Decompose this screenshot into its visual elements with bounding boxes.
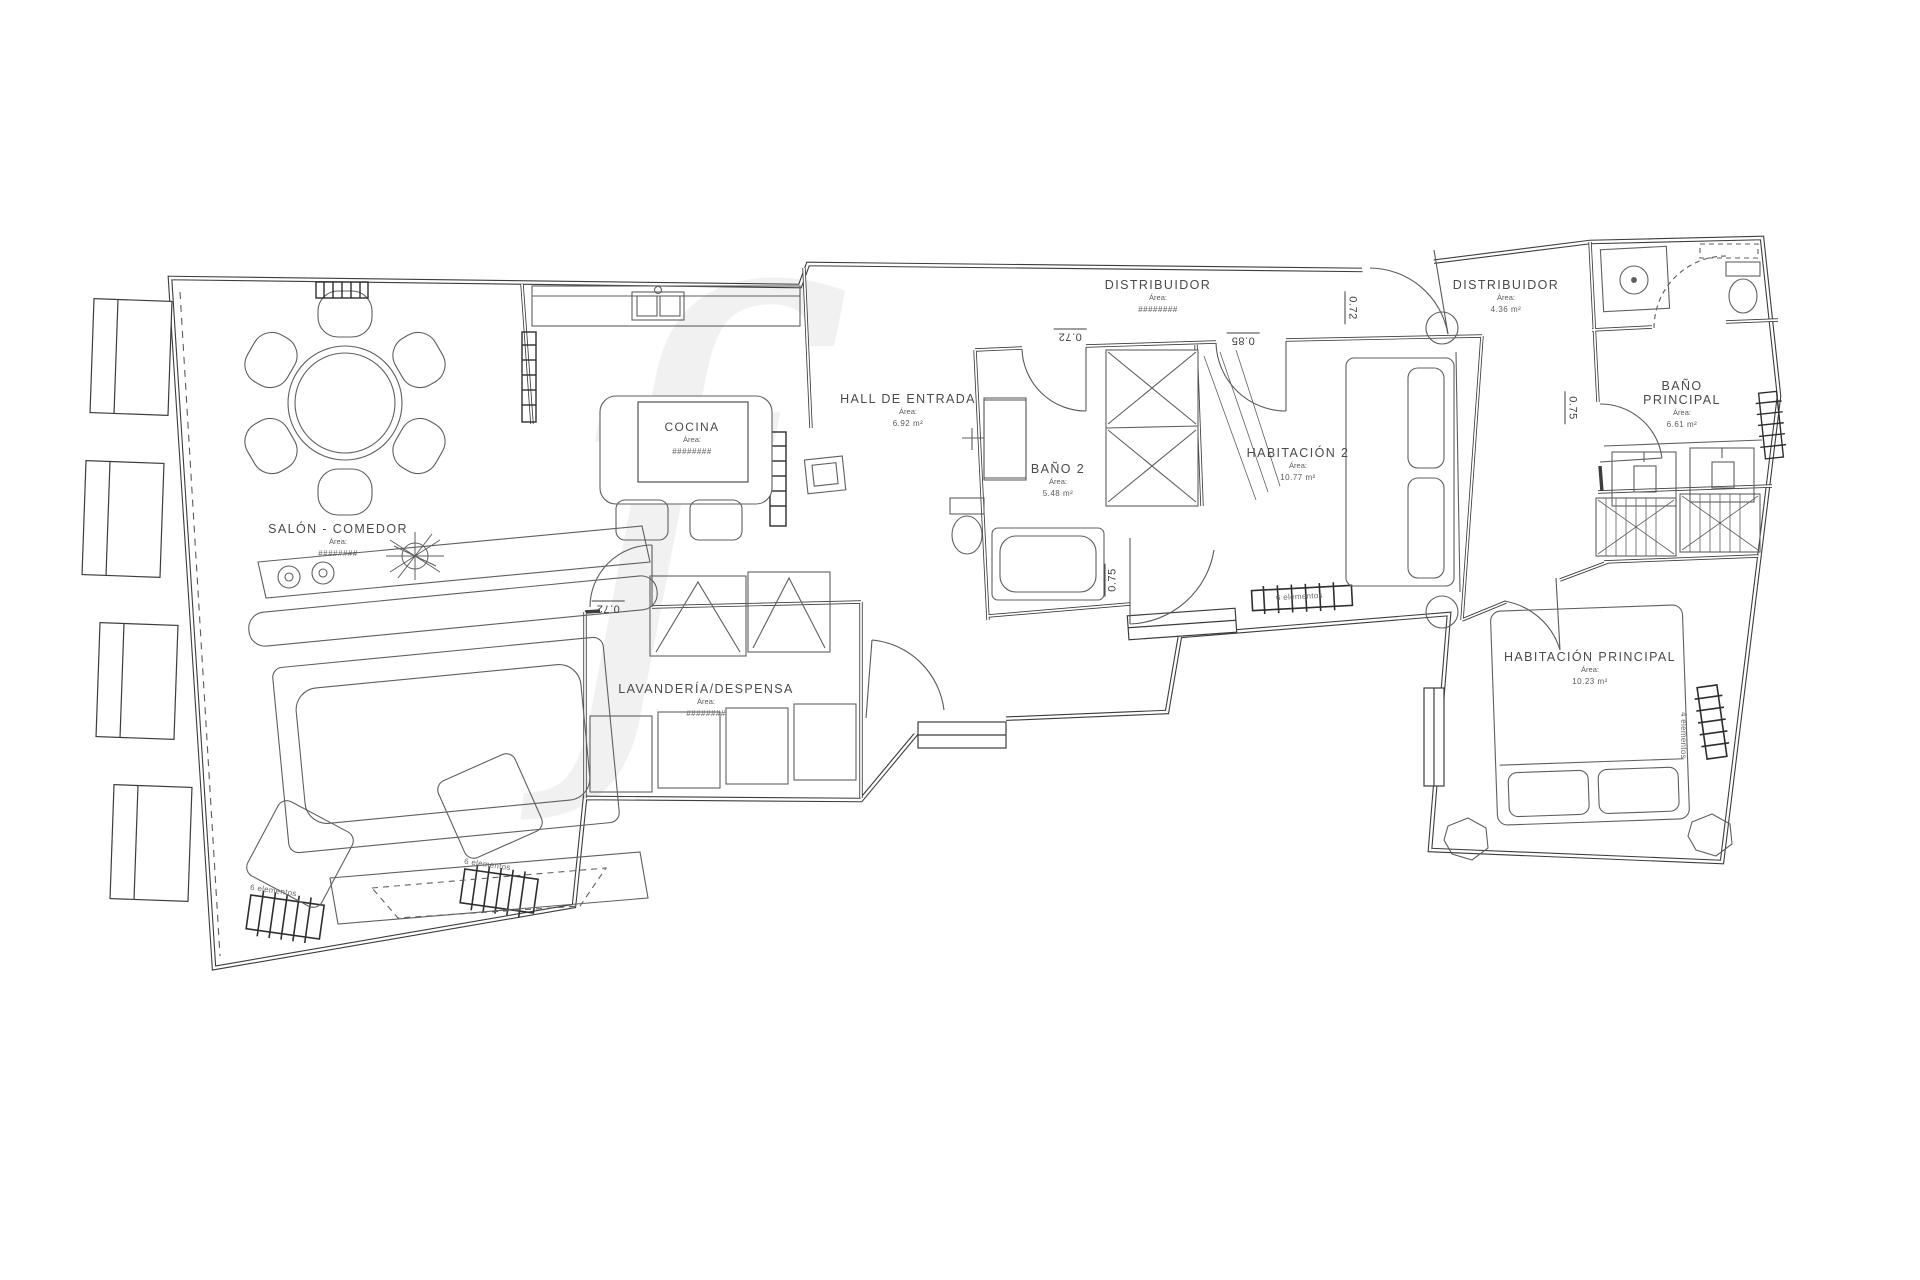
room-label-distribuidor-1: DISTRIBUIDOR Área: ######## <box>1105 278 1211 314</box>
bath2-tub <box>992 528 1104 600</box>
dimension-label: 0.72 <box>1053 329 1086 344</box>
kitchen-counter <box>532 286 800 326</box>
dimension-label: 0.75 <box>1105 563 1120 596</box>
room-area-label: Área: <box>268 537 408 546</box>
outer-walls <box>170 238 1779 968</box>
window-main-bedroom <box>1424 688 1444 786</box>
nightstand <box>1426 312 1458 344</box>
stool <box>690 500 742 540</box>
door-shower-room <box>1654 256 1726 328</box>
room-area-label: Área: <box>618 697 794 706</box>
room-area-value: 6.61 m² <box>1622 420 1742 429</box>
room-area-label: Área: <box>840 407 976 416</box>
armchair <box>435 751 546 862</box>
room-area-value: 5.48 m² <box>1031 489 1085 498</box>
bed-bedroom2 <box>1346 312 1460 628</box>
room-area-label: Área: <box>1504 665 1676 674</box>
room-area-value: 4.36 m² <box>1453 305 1559 314</box>
wall-frame <box>804 456 845 494</box>
room-name: LAVANDERÍA/DESPENSA <box>618 682 794 696</box>
doors <box>180 250 1726 956</box>
room-area-value: ######## <box>618 709 794 718</box>
toilet <box>1726 262 1760 313</box>
dimension-label: 0.85 <box>1226 333 1259 348</box>
room-area-value: 10.77 m² <box>1247 473 1350 482</box>
room-area-label: Área: <box>1622 408 1742 417</box>
door-main-bedroom <box>1504 578 1560 650</box>
kitchen-sink <box>632 287 684 321</box>
room-area-value: ######## <box>268 549 408 558</box>
dimension-label: 0.72 <box>591 601 624 616</box>
room-label-cocina: COCINA Área: ######## <box>664 420 719 456</box>
windows <box>82 299 1444 902</box>
room-area-label: Área: <box>1031 477 1085 486</box>
bath2-toilet <box>950 498 984 554</box>
entrance-step <box>918 722 1006 748</box>
room-name: HABITACIÓN 2 <box>1247 446 1350 460</box>
room-area-value: ######## <box>664 447 719 456</box>
window-bedroom2 <box>1127 608 1236 639</box>
room-area-label: Área: <box>1453 293 1559 302</box>
bay-window <box>90 299 172 416</box>
rug <box>294 663 592 826</box>
room-name: DISTRIBUIDOR <box>1105 278 1211 292</box>
shower-room <box>1600 244 1760 313</box>
room-label-habitacion-principal: HABITACIÓN PRINCIPAL Área: 10.23 m² <box>1504 650 1676 686</box>
stool <box>616 500 668 540</box>
room-area-label: Área: <box>1105 293 1211 302</box>
floor-plan-page: f <box>0 0 1920 1280</box>
room-area-value: 10.23 m² <box>1504 677 1676 686</box>
armchair <box>243 797 357 911</box>
room-area-value: ######## <box>1105 305 1211 314</box>
dining-table <box>238 291 453 515</box>
room-label-bano2: BAÑO 2 Área: 5.48 m² <box>1031 462 1085 498</box>
room-area-label: Área: <box>1247 461 1350 470</box>
radiator <box>316 282 368 298</box>
room-area-value: 6.92 m² <box>840 419 976 428</box>
room-name: DISTRIBUIDOR <box>1453 278 1559 292</box>
bay-window <box>82 461 164 578</box>
room-name: HABITACIÓN PRINCIPAL <box>1504 650 1676 664</box>
floor-plan-drawing <box>0 0 1920 1280</box>
door-bedroom2 <box>1216 341 1286 411</box>
wardrobe-bedroom2 <box>1106 350 1280 506</box>
bay-window <box>96 623 178 740</box>
kitchen-island <box>600 396 772 540</box>
door-bath2 <box>1022 347 1086 411</box>
room-area-label: Área: <box>664 435 719 444</box>
room-name: BAÑO PRINCIPAL <box>1622 379 1742 407</box>
radiator <box>245 889 325 945</box>
room-label-bano-principal: BAÑO PRINCIPAL Área: 6.61 m² <box>1622 379 1742 429</box>
nightstand <box>1426 596 1458 628</box>
radiator-count-label: 4 elementos <box>1679 712 1688 759</box>
bay-window <box>110 785 192 902</box>
room-label-habitacion2: HABITACIÓN 2 Área: 10.77 m² <box>1247 446 1350 482</box>
radiator <box>1693 684 1731 759</box>
dimension-label: 0.72 <box>1345 291 1360 324</box>
room-name: COCINA <box>664 420 719 434</box>
wardrobe-main <box>1596 494 1760 556</box>
main-bath-sinks <box>1604 440 1762 506</box>
room-name: HALL DE ENTRADA <box>840 392 976 406</box>
room-name: BAÑO 2 <box>1031 462 1085 476</box>
dimension-label: 0.75 <box>1565 391 1580 424</box>
room-name: SALÓN - COMEDOR <box>268 522 408 536</box>
sofa <box>272 637 620 854</box>
room-label-hall: HALL DE ENTRADA Área: 6.92 m² <box>840 392 976 428</box>
room-label-distribuidor-2: DISTRIBUIDOR Área: 4.36 m² <box>1453 278 1559 314</box>
room-label-salon: SALÓN - COMEDOR Área: ######## <box>268 522 408 558</box>
room-label-lavanderia: LAVANDERÍA/DESPENSA Área: ######## <box>618 682 794 718</box>
bed-main <box>1490 605 1689 826</box>
